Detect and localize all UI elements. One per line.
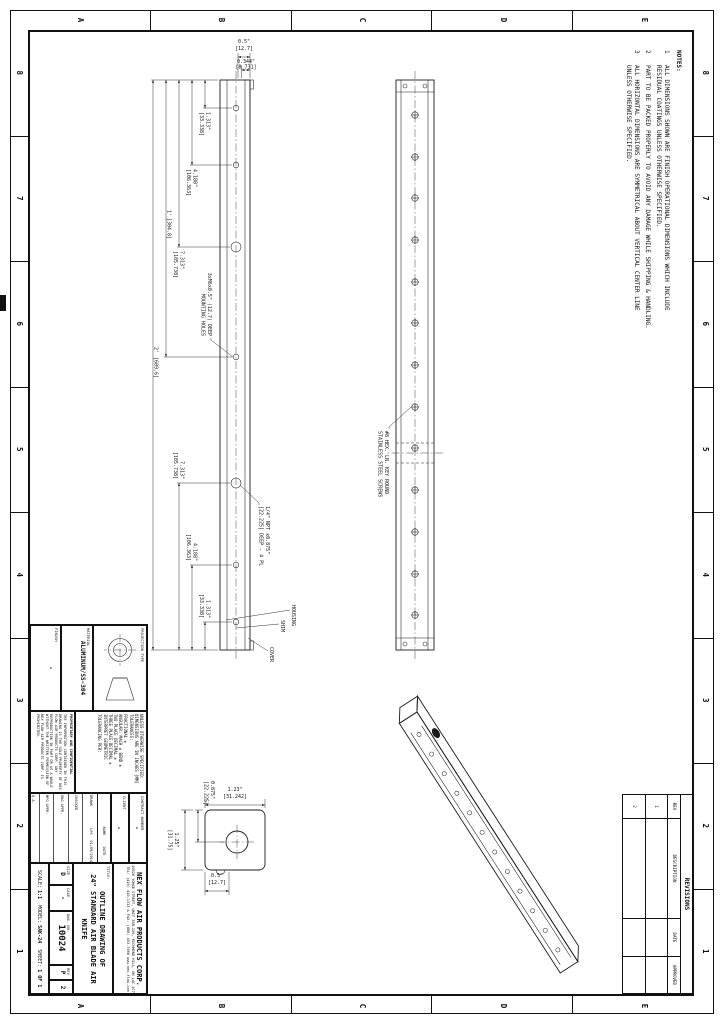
company-address: 10520 YONGE STREET, UNIT 35B-220, RICHMO… <box>130 864 135 994</box>
material-value: ALUMINUM/SS-304 <box>79 626 86 710</box>
third-angle-projection-icon <box>98 626 140 710</box>
callout-text: HOUSING <box>290 605 296 626</box>
zone-tick <box>10 889 30 890</box>
rev-approved <box>623 957 645 993</box>
dim-text: [106.363] <box>185 169 191 196</box>
section-view: 1.23" [31.242] 0.875" [22.225] 1.25" [31… <box>149 765 299 945</box>
rev-number: 1 <box>646 795 667 819</box>
revision-row: 1 <box>645 795 667 993</box>
note-item: 3 ALL HORIZONTAL DIMENSIONS ARE SYMMETRI… <box>623 50 640 395</box>
zone-tick <box>572 10 573 30</box>
company-cell: NEX FLOW AIR PRODUCTS CORP. 10520 YONGE … <box>113 863 147 995</box>
note-number: 1 <box>653 50 670 65</box>
rev-approved <box>646 957 667 993</box>
zone-label: D <box>497 999 509 1013</box>
revision-table: REVISIONS REV DESCRIPTION DATE APPROVED … <box>622 794 694 994</box>
dim-profile-height: 1.25" [31.75] <box>167 810 204 870</box>
dim-port-offset: 0.5" [12.7] <box>205 872 229 895</box>
mounting-holes-callout: 3xM6x0.5" (12.7) DEEP MOUNTING HOLES <box>200 273 234 357</box>
zone-tick <box>10 387 30 388</box>
scale-value: 1:1 <box>36 890 42 899</box>
zone-label: 7 <box>13 191 25 205</box>
air-knife-body-outline <box>220 80 254 650</box>
rev-date <box>646 919 667 957</box>
screws-callout: #8 HEX. LN. KEY ROUND STAINLESS STEEL SC… <box>377 407 412 497</box>
name-col-header: NAME <box>98 822 110 840</box>
rev-value: P <box>59 966 66 979</box>
cage-value: - <box>59 886 66 910</box>
zone-label: 1 <box>13 944 25 958</box>
sheet-label: SHEET: <box>36 949 42 967</box>
zone-label: 3 <box>13 693 25 707</box>
dim-text: [31.242] <box>223 794 247 800</box>
approval-date <box>55 840 69 862</box>
size-cell: SIZE D <box>49 863 73 885</box>
zone-label: 5 <box>13 442 25 456</box>
note-item: 1 ALL DIMENSIONS SHOWN ARE FINISH OPERAT… <box>653 50 670 395</box>
callout-text: [22.225] DEEP - 4 PL <box>258 506 264 566</box>
contract-value: - <box>133 794 140 862</box>
revisions-title: REVISIONS <box>680 795 693 993</box>
zone-label: 4 <box>699 568 711 582</box>
zone-tick <box>10 261 30 262</box>
zone-tick <box>10 763 30 764</box>
drawing-sheet: 8877665544332211EEDDCCBBAA NOTES: 1 ALL … <box>10 10 714 1014</box>
zone-tick <box>291 10 292 30</box>
layer-callouts: HOUSING SHIM COVER <box>226 605 296 663</box>
model-value: SAK-24 <box>36 925 42 943</box>
scale-label: SCALE: <box>36 870 42 888</box>
approval-row-label: ENG APPR. <box>55 794 69 823</box>
dim-slot: 0.875" [22.225] <box>195 781 224 842</box>
zone-tick <box>431 10 432 30</box>
callout-text: COVER <box>268 647 274 663</box>
rev-description <box>646 819 667 919</box>
rev-label: REV <box>66 966 72 979</box>
dim-text: 7.313" <box>179 461 185 479</box>
dim-text: [185.738] <box>172 452 178 479</box>
dim-text: 0.5" <box>211 873 223 879</box>
approval-name: LPS <box>84 823 98 841</box>
dim-text: [31.75] <box>167 829 173 850</box>
tolerance-note: UNLESS OTHERWISE SPECIFIED: DIMENSIONS A… <box>95 712 146 792</box>
model-label: MODEL: <box>36 905 42 923</box>
rev-seq-value: 2 <box>59 981 66 994</box>
title-label: TITLE: <box>106 864 112 994</box>
approval-date: 01/09/2014 <box>84 840 98 862</box>
date-col-header: DATE <box>98 840 110 862</box>
approval-name <box>69 823 83 841</box>
isometric-view <box>394 670 609 990</box>
dim-text: [33.338] <box>198 594 204 618</box>
finish-cell: FINISH - <box>29 625 61 711</box>
dim-text: [609.6] <box>153 357 159 378</box>
projection-cell: PROJECTION TYPE <box>93 625 147 711</box>
projection-label: PROJECTION TYPE <box>140 626 146 710</box>
face-screws <box>403 84 427 646</box>
zone-tick <box>694 387 714 388</box>
approval-name <box>29 823 39 841</box>
zone-tick <box>694 889 714 890</box>
zone-tick <box>572 994 573 1014</box>
face-view: #8 HEX. LN. KEY ROUND STAINLESS STEEL SC… <box>354 35 469 695</box>
drawing-title-line1: OUTLINE DRAWING OF <box>97 864 106 994</box>
drawing-title-line2: 24" STANDARD AIR BLADE AIR KNIFE <box>79 864 97 994</box>
drawing-page: 8877665544332211EEDDCCBBAA NOTES: 1 ALL … <box>0 0 724 1024</box>
contract-cell: CONTRACT NUMBER - <box>129 793 147 863</box>
zone-label: 3 <box>699 693 711 707</box>
zone-label: 6 <box>699 317 711 331</box>
note-text: ALL DIMENSIONS SHOWN ARE FINISH OPERATIO… <box>653 65 670 311</box>
callout-text: MOUNTING HOLES <box>200 294 206 336</box>
contract-label: CONTRACT NUMBER <box>140 794 146 862</box>
approval-date <box>40 840 54 862</box>
zone-tick <box>10 136 30 137</box>
zone-label: 7 <box>699 191 711 205</box>
callout-text: 1/4" NPT x0.875" <box>264 506 270 554</box>
dim-text: 1.313" <box>205 600 211 618</box>
dim-text: [304.8] <box>166 218 172 239</box>
callout-text: STAINLESS STEEL SCREWS <box>377 431 383 497</box>
iso-body <box>392 696 585 973</box>
dim-text: 4.188" <box>192 169 198 187</box>
zone-label: D <box>497 13 509 27</box>
revision-row: 2 <box>623 795 645 993</box>
dim-text: [12.7] <box>235 46 253 52</box>
callout-text: #8 HEX. LN. KEY ROUND <box>383 431 389 494</box>
air-inlet-port <box>430 727 442 740</box>
note-item: 2 PART TO BE PACKED PROPERLY TO AVOID AN… <box>642 50 651 395</box>
dim-text: [22.225] <box>203 781 209 805</box>
zone-tick <box>694 512 714 513</box>
zone-label: 8 <box>699 66 711 80</box>
approval-table: NAME DATE DRAWN LPS 01/09/2014 CHECKED E… <box>29 793 111 863</box>
dim-text: 1.25" <box>173 832 179 847</box>
tolerance-cell: UNLESS OTHERWISE SPECIFIED: DIMENSIONS A… <box>75 711 147 793</box>
scale-row: SCALE: 1:1 MODEL: SAK-24 SHEET: 1 OF 1 <box>29 863 49 995</box>
zone-tick <box>431 994 432 1014</box>
zone-label: 4 <box>13 568 25 582</box>
zone-label: A <box>74 999 86 1013</box>
dim-text: [106.363] <box>185 534 191 561</box>
approved-col-header: APPROVED <box>668 957 680 993</box>
approval-date <box>69 840 83 862</box>
dim-text: 1.23" <box>227 787 242 793</box>
material-cell: MATERIAL ALUMINUM/SS-304 <box>61 625 93 711</box>
npt-callout: 1/4" NPT x0.875" [22.225] DEEP - 4 PL <box>240 485 270 566</box>
dim-text: 4.188" <box>192 543 198 561</box>
company-contact: TEL: (416) 410-1313 & FAX: (888) 453-700… <box>126 864 131 994</box>
zone-tick <box>694 261 714 262</box>
dim-text: [8.731] <box>235 65 256 71</box>
zone-label: C <box>356 999 368 1013</box>
notes-heading: NOTES: <box>673 50 682 395</box>
proprietary-cell: PROPRIETARY AND CONFIDENTIAL THE INFORMA… <box>29 711 75 793</box>
approval-row-label: DRAWN <box>84 794 98 823</box>
title-cell: TITLE: OUTLINE DRAWING OF 24" STANDARD A… <box>73 863 113 995</box>
approval-row-label: CHECKED <box>69 794 83 823</box>
note-number: 3 <box>623 50 640 65</box>
client-value: - <box>115 794 122 862</box>
rev-seq-cell: 2 <box>49 980 73 995</box>
callout-text: 3xM6x0.5" (12.7) DEEP <box>206 273 212 336</box>
zone-label: E <box>638 13 650 27</box>
zone-label: A <box>74 13 86 27</box>
finish-value: - <box>47 626 54 710</box>
zone-label: C <box>356 13 368 27</box>
zone-label: B <box>215 999 227 1013</box>
dim-text: [12.7] <box>208 880 226 886</box>
date-col-header: DATE <box>668 919 680 957</box>
zone-label: B <box>215 13 227 27</box>
note-text: ALL HORIZONTAL DIMENSIONS ARE SYMMETRICA… <box>623 65 640 311</box>
company-name: NEX FLOW AIR PRODUCTS CORP. <box>135 864 146 994</box>
zone-label: 2 <box>13 819 25 833</box>
zone-tick <box>291 994 292 1014</box>
dim-hole-line-offset: 0.344" [8.731] <box>235 59 256 78</box>
dim-text: 0.875" <box>209 781 215 799</box>
client-cell: CLIENT - <box>111 793 129 863</box>
zone-label: E <box>638 999 650 1013</box>
zone-tick <box>10 638 30 639</box>
iso-screws <box>416 732 561 953</box>
material-label: MATERIAL <box>86 626 92 710</box>
dim-text: 1.313" <box>205 112 211 130</box>
approval-row-label: MFG APPR. <box>40 794 54 823</box>
zone-label: 8 <box>13 66 25 80</box>
dim-text: [185.738] <box>172 251 178 278</box>
zone-label: 6 <box>13 317 25 331</box>
dim-text: [33.338] <box>198 112 204 136</box>
note-number: 2 <box>642 50 651 65</box>
dim-text: 1' <box>166 210 172 216</box>
revision-header-row: REV DESCRIPTION DATE APPROVED <box>667 795 680 993</box>
zone-tick <box>150 10 151 30</box>
title-block: PROJECTION TYPE MATERIAL ALUMINUM/SS-304… <box>30 624 148 994</box>
callout-text: SHIM <box>279 620 285 632</box>
approval-name <box>55 823 69 841</box>
description-col-header: DESCRIPTION <box>668 819 680 919</box>
dim-text: 2' <box>153 347 159 353</box>
zone-label: 1 <box>699 944 711 958</box>
zone-tick <box>694 136 714 137</box>
dim-text: 0.5" <box>238 39 250 45</box>
dwg-no-label: DWG. NO. <box>66 912 72 964</box>
proprietary-body: THE INFORMATION CONTAINED IN THIS DRAWIN… <box>34 712 67 792</box>
zone-tick <box>150 994 151 1014</box>
zone-tick <box>694 763 714 764</box>
rev-date <box>623 919 645 957</box>
cage-label: CAGE <box>66 886 72 910</box>
dwg-no-cell: DWG. NO. 10024 <box>49 911 73 965</box>
general-notes: NOTES: 1 ALL DIMENSIONS SHOWN ARE FINISH… <box>621 50 682 395</box>
rev-number: 2 <box>623 795 645 819</box>
note-text: PART TO BE PACKED PROPERLY TO AVOID ANY … <box>642 65 651 329</box>
proprietary-heading: PROPRIETARY AND CONFIDENTIAL <box>68 712 74 792</box>
rev-col-header: REV <box>668 795 680 819</box>
rev-cell: REV P <box>49 965 73 980</box>
zone-tick <box>694 638 714 639</box>
approval-row-label: Q.A. <box>29 794 39 823</box>
zone-tick <box>10 512 30 513</box>
approval-date <box>29 840 39 862</box>
scan-mark <box>0 295 6 311</box>
sheet-value: 1 OF 1 <box>36 969 42 987</box>
rev-description <box>623 819 645 919</box>
client-label: CLIENT <box>122 794 128 862</box>
zone-label: 5 <box>699 442 711 456</box>
approval-name <box>40 823 54 841</box>
top-view: 0.5" [12.7] 0.344" [8.731] 1.313" [33.33 <box>134 35 319 695</box>
dwg-no-value: 10024 <box>56 912 66 964</box>
cage-cell: CAGE - <box>49 885 73 911</box>
dim-text: 7.313" <box>179 251 185 269</box>
size-value: D <box>59 864 66 884</box>
finish-label: FINISH <box>54 626 60 710</box>
size-label: SIZE <box>66 864 72 884</box>
zone-label: 2 <box>699 819 711 833</box>
